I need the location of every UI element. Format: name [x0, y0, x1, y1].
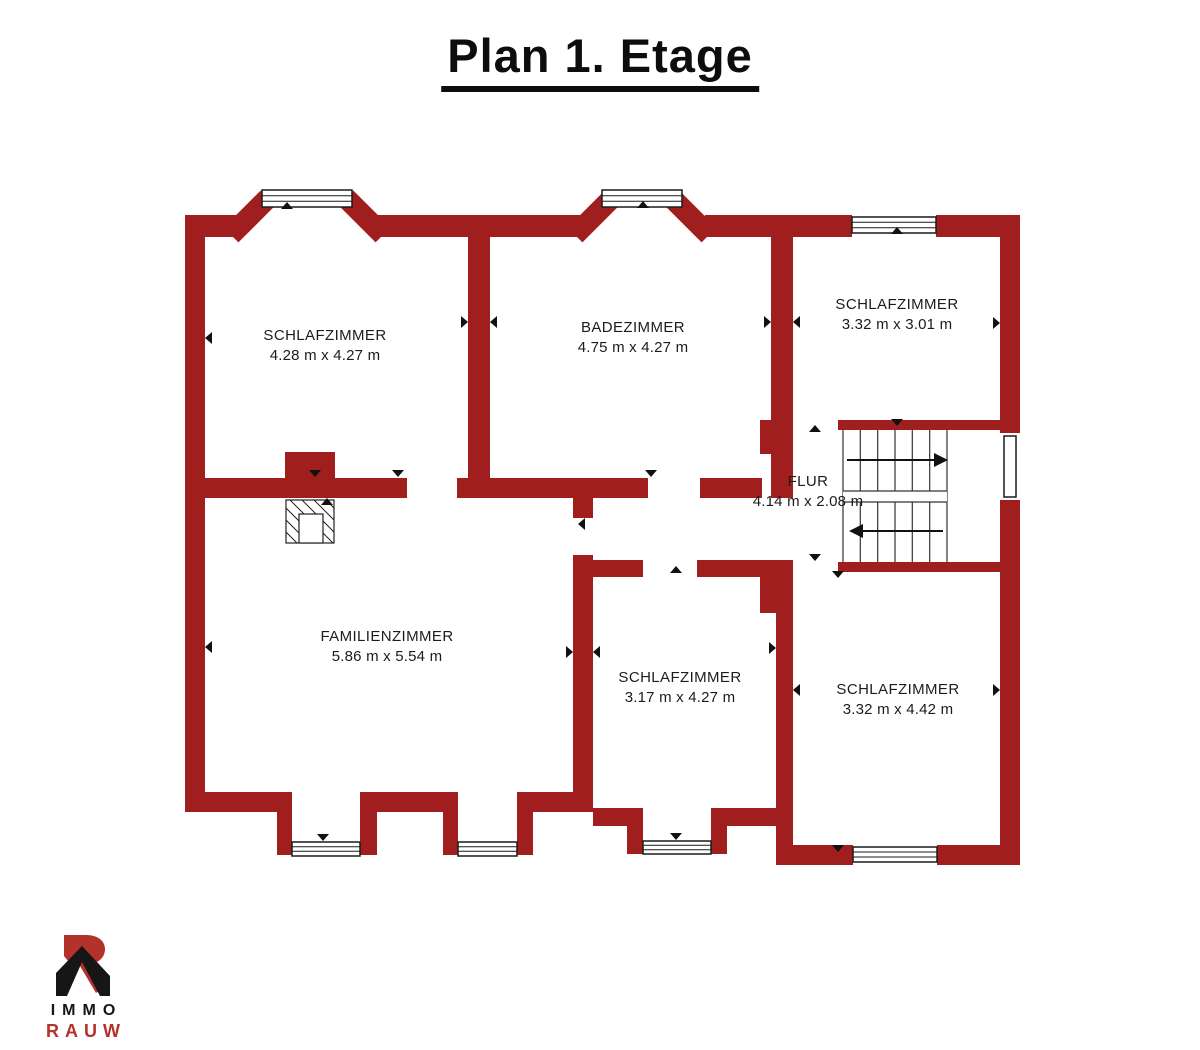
room-dims: 4.14 m x 2.08 m — [753, 492, 864, 512]
window-family-bay-2 — [458, 842, 517, 856]
room-dims: 3.17 m x 4.27 m — [618, 688, 741, 708]
room-label-schlafzimmer-bottom-right: SCHLAFZIMMER 3.32 m x 4.42 m — [836, 680, 959, 720]
room-label-schlafzimmer-top-right: SCHLAFZIMMER 3.32 m x 3.01 m — [835, 295, 958, 335]
room-name: FAMILIENZIMMER — [320, 627, 453, 647]
room-label-schlafzimmer-top-left: SCHLAFZIMMER 4.28 m x 4.27 m — [263, 326, 386, 366]
window-bottom-middle — [643, 841, 711, 854]
logo-r-house-icon — [52, 930, 114, 1000]
room-name: SCHLAFZIMMER — [618, 668, 741, 688]
room-dims: 4.28 m x 4.27 m — [263, 346, 386, 366]
room-label-flur: FLUR 4.14 m x 2.08 m — [753, 472, 864, 512]
logo-text-rauw: RAUW — [28, 1021, 138, 1042]
chimney-hatched — [240, 498, 378, 552]
chimney-block — [285, 452, 335, 480]
room-dims: 5.86 m x 5.54 m — [320, 647, 453, 667]
room-name: FLUR — [753, 472, 864, 492]
floor-plan-drawing — [0, 0, 1200, 1050]
room-label-badezimmer: BADEZIMMER 4.75 m x 4.27 m — [578, 318, 689, 358]
room-name: SCHLAFZIMMER — [836, 680, 959, 700]
window-family-bay-1 — [292, 842, 360, 856]
room-label-schlafzimmer-bottom-middle: SCHLAFZIMMER 3.17 m x 4.27 m — [618, 668, 741, 708]
logo: IMMO RAUW — [28, 930, 138, 1042]
room-label-familienzimmer: FAMILIENZIMMER 5.86 m x 5.54 m — [320, 627, 453, 667]
room-name: SCHLAFZIMMER — [263, 326, 386, 346]
room-name: SCHLAFZIMMER — [835, 295, 958, 315]
window-right-flur — [1000, 433, 1020, 500]
room-name: BADEZIMMER — [578, 318, 689, 338]
floor-plan-page: Plan 1. Etage — [0, 0, 1200, 1050]
window-bay-top-left — [262, 190, 352, 207]
room-dims: 3.32 m x 4.42 m — [836, 700, 959, 720]
room-dims: 3.32 m x 3.01 m — [835, 315, 958, 335]
window-bottom-right — [853, 847, 937, 862]
logo-text-immo: IMMO — [28, 1002, 138, 1020]
room-dims: 4.75 m x 4.27 m — [578, 338, 689, 358]
